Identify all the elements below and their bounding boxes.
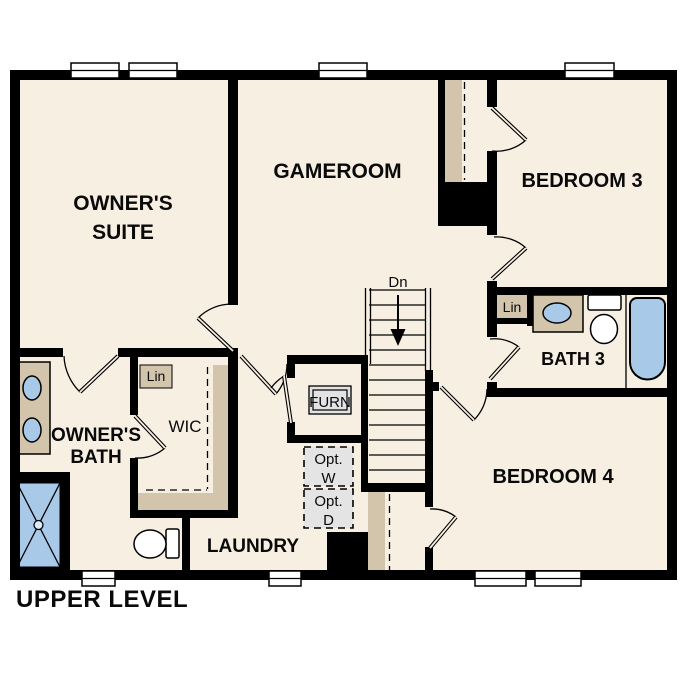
wall-bedroom3-upper <box>487 70 497 107</box>
label-linen-wic: Lin <box>140 368 172 384</box>
room-label-gameroom: GAMEROOM <box>240 157 435 186</box>
wall-shower-top <box>10 472 70 480</box>
wall-chase-block <box>438 182 497 226</box>
wall-stairs-bottom <box>361 483 432 492</box>
owners-suite-line2: SUITE <box>42 218 204 247</box>
wall-laundry-block <box>327 532 368 572</box>
owners-bath-sink-1 <box>23 376 41 400</box>
wall-furn-bottom <box>287 435 368 443</box>
owners-suite-line1: OWNER'S <box>42 189 204 218</box>
wall-bath3-bottom <box>497 388 677 397</box>
owners-bath-sink-2 <box>23 418 41 442</box>
wall-landing-stub <box>430 382 439 391</box>
wall-stairs-left <box>361 364 368 492</box>
room-label-bedroom4: BEDROOM 4 <box>473 466 633 489</box>
wall-bedroom3-mid <box>487 151 497 182</box>
wall-landing-right-stub <box>487 382 497 397</box>
wic-shelf-right <box>213 365 228 510</box>
opt-washer-line2: W <box>304 469 353 488</box>
label-linen-bath3: Lin <box>496 299 528 315</box>
room-label-owners-bath: OWNER'S BATH <box>44 425 148 469</box>
room-label-bedroom3: BEDROOM 3 <box>499 170 665 193</box>
shower-drain <box>34 521 43 530</box>
owners-bath-line1: OWNER'S <box>44 425 148 447</box>
wall-wic-right <box>228 352 238 518</box>
wall-wic-left-upper <box>130 357 138 415</box>
floorplan-upper-level: OWNER'S SUITE GAMEROOM BEDROOM 3 BATH 3 … <box>0 0 687 687</box>
opt-washer-line1: Opt. <box>304 450 353 469</box>
wall-furn-left-upper <box>287 364 295 378</box>
exterior-wall-left <box>10 70 20 580</box>
bedroom4-closet-shelf <box>368 492 385 572</box>
wall-suite-bottom-left <box>10 348 63 357</box>
wall-furn-top <box>287 355 368 364</box>
label-stairs-down: Dn <box>379 273 417 292</box>
wall-bedroom4-closet-lower <box>425 547 433 572</box>
bath3-sink <box>543 303 571 323</box>
label-optional-dryer: Opt. D <box>304 492 353 530</box>
room-label-laundry: LAUNDRY <box>197 536 309 558</box>
wall-bedroom3-bath3 <box>497 287 677 295</box>
wall-toilet-laundry <box>182 518 190 574</box>
opt-dryer-line1: Opt. <box>304 492 353 511</box>
bath3-toilet-bowl <box>591 315 618 344</box>
floorplan-drawing <box>0 0 687 687</box>
wall-bedroom3-stub <box>487 226 497 235</box>
room-label-owners-suite: OWNER'S SUITE <box>42 189 204 247</box>
plan-title: UPPER LEVEL <box>16 586 266 614</box>
owners-toilet-tank <box>166 529 179 558</box>
wall-bedroom3-closet-left <box>438 80 445 182</box>
wic-shelf-bottom <box>138 493 228 510</box>
bath3-toilet-tank <box>588 295 621 310</box>
wall-shower-right <box>62 472 70 572</box>
label-furnace: FURN <box>305 393 355 412</box>
bath3-tub <box>630 298 665 380</box>
wall-suite-gameroom <box>228 80 238 305</box>
wall-bedroom4-closet-upper <box>425 492 433 507</box>
opt-dryer-line2: D <box>304 511 353 530</box>
room-label-wic: WIC <box>158 417 212 437</box>
exterior-wall-right <box>667 70 677 580</box>
owners-toilet-bowl <box>134 530 166 558</box>
label-optional-washer: Opt. W <box>304 450 353 488</box>
wall-bath3-linen-bottom <box>497 318 533 324</box>
wall-suite-bottom-right <box>118 348 238 357</box>
bedroom3-closet-shelf <box>445 80 462 182</box>
owners-bath-line2: BATH <box>44 447 148 469</box>
wall-wic-bottom <box>130 510 238 518</box>
room-label-bath3: BATH 3 <box>518 349 628 370</box>
